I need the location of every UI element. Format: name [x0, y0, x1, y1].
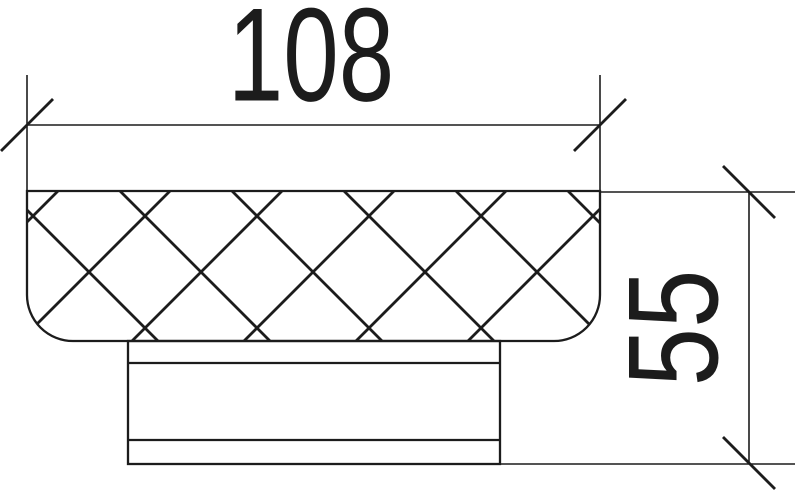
height-dimension-label: 55: [600, 270, 747, 387]
drawing-canvas: 108 55: [0, 0, 800, 490]
drawing-linework: [0, 0, 800, 490]
knurled-head-outline: [27, 191, 600, 341]
knob-shaft: [128, 341, 500, 464]
width-dimension-label: 108: [228, 0, 394, 132]
shaft-outline: [128, 341, 500, 464]
